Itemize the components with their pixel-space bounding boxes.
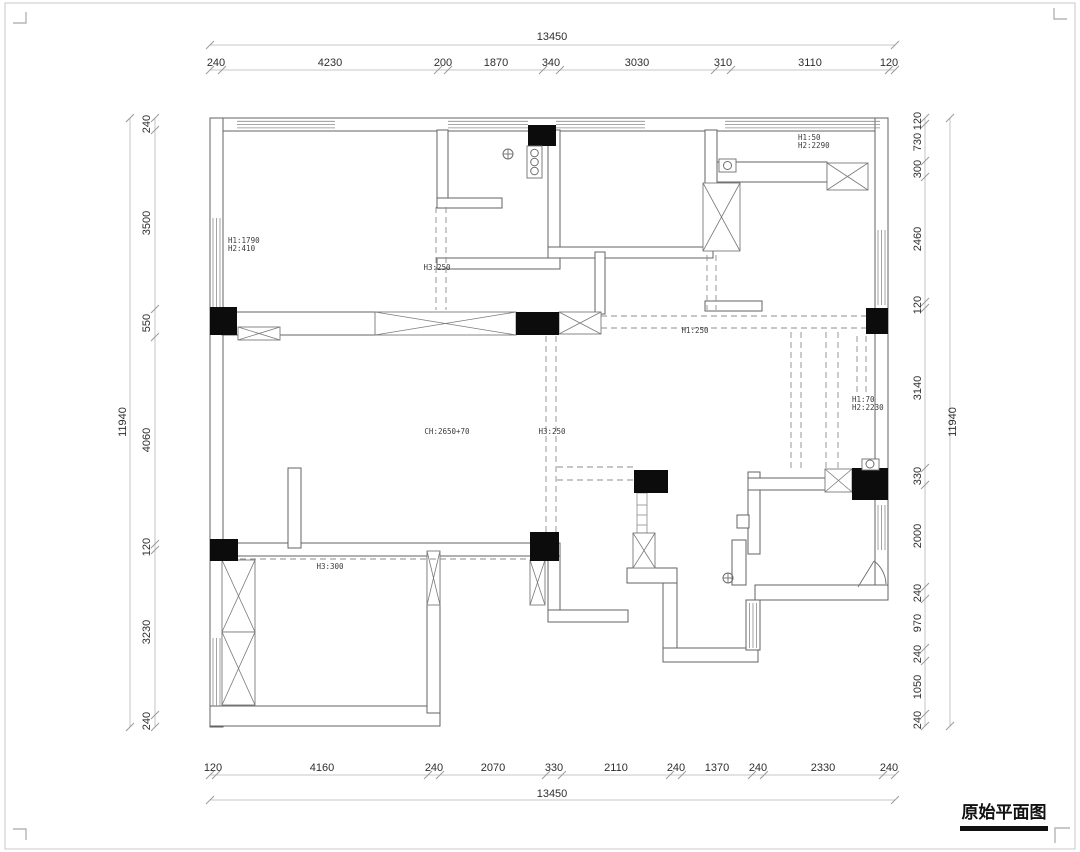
- wall-bath-left-top: [627, 568, 677, 583]
- beam-label: H3:250: [423, 263, 451, 272]
- dim-segment: 240: [667, 762, 685, 774]
- wall-topright-left: [705, 130, 717, 185]
- dim-total-right: 11940: [947, 407, 959, 437]
- beam-label: H1:250: [681, 326, 709, 335]
- hatch-beam-mid: [375, 312, 516, 335]
- dim-segment: 120: [141, 538, 153, 556]
- ceiling-height-label: CH:2650+70: [424, 427, 470, 436]
- wall-bedroom-top-left: [548, 130, 560, 258]
- hatch-box: [238, 327, 280, 340]
- corner-mark-top-right: [1054, 8, 1067, 19]
- dim-segment: 4060: [141, 428, 153, 452]
- column: [210, 539, 238, 561]
- dim-segment: 970: [912, 614, 924, 632]
- dim-segment: 340: [542, 57, 560, 69]
- column: [852, 468, 888, 500]
- hatch-box: [703, 183, 740, 251]
- dim-segment: 2330: [811, 762, 835, 774]
- beam-label: H2:2290: [798, 141, 830, 150]
- dim-segment: 1870: [484, 57, 508, 69]
- wall-step-horiz: [548, 610, 628, 622]
- floor-plan-drawing: H1:1790 H2:410 H3:250 H1:50 H2:2290 H1:2…: [0, 0, 1080, 852]
- hatch-box: [825, 469, 852, 492]
- dim-segment: 550: [141, 314, 153, 332]
- dim-total-bottom: 13450: [537, 788, 568, 800]
- dim-segment: 240: [912, 584, 924, 602]
- dim-segment: 240: [912, 711, 924, 729]
- corner-mark-top-left: [13, 12, 26, 23]
- wall-kitchen-counter: [437, 198, 502, 208]
- dim-segment: 240: [141, 712, 153, 730]
- hatch-strip-left-a: [222, 560, 255, 632]
- corner-mark-bottom-left: [13, 829, 26, 840]
- dim-segment: 120: [912, 296, 924, 314]
- door-pivot-icon: [719, 159, 736, 172]
- dim-segment: 300: [912, 160, 924, 178]
- dim-segment: 240: [880, 762, 898, 774]
- dim-segment: 240: [749, 762, 767, 774]
- beam-label: H2:410: [228, 244, 256, 253]
- dim-segment: 330: [545, 762, 563, 774]
- dim-total-top: 13450: [537, 31, 568, 43]
- beam-label: H3:250: [538, 427, 566, 436]
- dim-segment: 240: [912, 645, 924, 663]
- floor-plan-page: H1:1790 H2:410 H3:250 H1:50 H2:2290 H1:2…: [0, 0, 1080, 852]
- wall-kitchen-bottom: [437, 258, 560, 269]
- column: [210, 307, 237, 335]
- door-pivot-icon: [862, 459, 879, 470]
- hatch-box: [827, 163, 868, 190]
- column: [528, 125, 556, 146]
- wall-bottom-left: [210, 706, 440, 726]
- dim-segment: 730: [912, 133, 924, 151]
- dim-segment: 2070: [481, 762, 505, 774]
- dim-segment: 1050: [912, 675, 924, 699]
- dashed-beam-center-h: [557, 467, 633, 480]
- wall-stub-lower-left: [288, 468, 301, 548]
- dim-segment: 310: [714, 57, 732, 69]
- dim-segment: 240: [425, 762, 443, 774]
- dim-segment: 2110: [604, 762, 628, 774]
- wall-left-exterior: [210, 118, 223, 727]
- dim-segment: 240: [207, 57, 225, 69]
- dim-segment: 120: [880, 57, 898, 69]
- dim-segment: 120: [912, 112, 924, 130]
- stove-burners-icon: [527, 146, 542, 178]
- dim-total-left: 11940: [117, 407, 129, 437]
- wall-room-br-top: [748, 478, 828, 490]
- wall-room-br-notch: [737, 515, 749, 528]
- dim-segment: 240: [141, 115, 153, 133]
- column: [634, 470, 668, 493]
- wall-bath-bottom: [663, 648, 758, 662]
- dim-segment: 3500: [141, 211, 153, 235]
- dim-segment: 3230: [141, 620, 153, 644]
- dim-segment: 1370: [705, 762, 729, 774]
- dashed-beam-right-a: [791, 332, 801, 468]
- dim-segment: 3110: [798, 57, 822, 69]
- wall-kitchen-partition: [437, 130, 448, 207]
- wall-mid-bottom: [210, 543, 560, 556]
- dashed-beam-right-c: [857, 336, 866, 392]
- dim-segment: 3030: [625, 57, 649, 69]
- corner-mark-bottom-right: [1055, 828, 1070, 843]
- dashed-beam-right-b: [826, 332, 838, 468]
- wall-room-br-bottom: [755, 585, 888, 600]
- column: [866, 308, 888, 334]
- dim-segment: 2460: [912, 227, 924, 251]
- title-underline: [960, 826, 1048, 831]
- dim-segment: 2000: [912, 524, 924, 548]
- hatch-strip-left-b: [222, 632, 255, 705]
- column: [516, 312, 559, 335]
- drawing-title: 原始平面图: [962, 802, 1047, 823]
- wall-bedroom-top-bottom: [548, 247, 713, 258]
- floor-drain-icon: [723, 573, 733, 583]
- dim-segment: 3140: [912, 376, 924, 400]
- beam-label: H2:2230: [852, 403, 884, 412]
- dim-segment: 330: [912, 467, 924, 485]
- window-strip-center: [637, 493, 647, 533]
- wall-step-vert: [548, 556, 560, 614]
- hatch-box: [559, 312, 601, 334]
- dim-segment: 4160: [310, 762, 334, 774]
- dashed-beam-mid: [601, 316, 866, 328]
- wall-hall-stub-top: [595, 252, 605, 314]
- column: [530, 532, 559, 561]
- hatch-box: [633, 533, 655, 568]
- wall-bath-room-link: [732, 540, 746, 585]
- beam-label: H3:300: [316, 562, 344, 571]
- hatch-box: [530, 560, 545, 605]
- dashed-beam-center-v: [546, 336, 556, 543]
- walls: [210, 118, 888, 727]
- dim-segment: 120: [204, 762, 222, 774]
- dim-segment: 200: [434, 57, 452, 69]
- wall-topright-closet-bottom: [705, 301, 762, 311]
- dim-segment: 4230: [318, 57, 342, 69]
- floor-drain-icon: [503, 149, 513, 159]
